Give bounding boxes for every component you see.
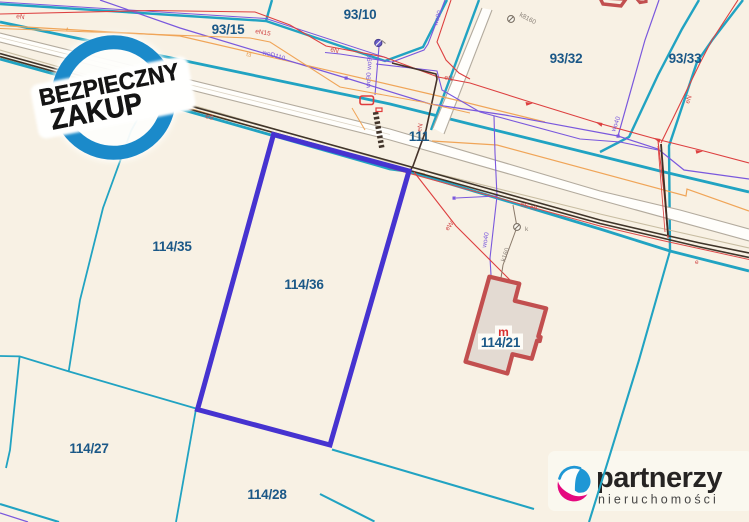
svg-text:114/28: 114/28: [247, 487, 287, 502]
svg-text:93/32: 93/32: [550, 51, 583, 66]
svg-text:93/10: 93/10: [344, 7, 377, 22]
svg-text:93/15: 93/15: [212, 22, 245, 37]
svg-text:partnerzy: partnerzy: [596, 462, 722, 494]
svg-text:114/36: 114/36: [284, 277, 324, 292]
svg-text:114/21: 114/21: [481, 335, 521, 350]
svg-text:111: 111: [409, 129, 430, 144]
svg-text:wo90: wo90: [365, 72, 373, 89]
svg-text:nieruchomości: nieruchomości: [598, 493, 719, 507]
svg-text:e: e: [695, 259, 699, 266]
svg-text:93/33: 93/33: [669, 51, 702, 66]
svg-text:eN: eN: [16, 13, 26, 21]
svg-text:wo90: wo90: [366, 54, 374, 71]
svg-text:114/27: 114/27: [69, 441, 108, 456]
svg-text:114/35: 114/35: [152, 239, 192, 254]
